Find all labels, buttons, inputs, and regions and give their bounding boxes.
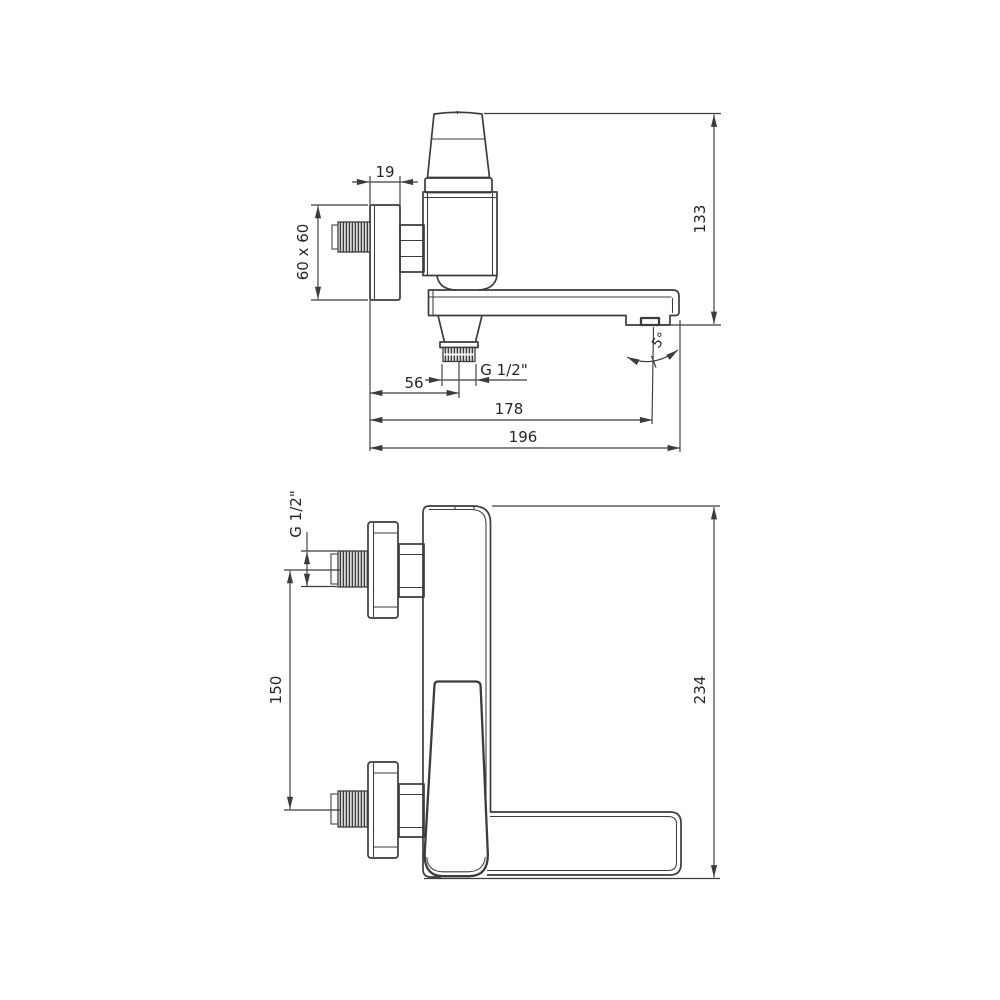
pipe-tip [332,225,338,249]
neck-right [476,316,483,343]
hex-nut-lower [399,784,424,837]
handle-top-notch [457,111,458,114]
faucet-technical-drawing: 19 60 x 60 133 G 1/2" 56 [0,0,1000,1000]
front-view-fixture [331,506,681,877]
handle-front [425,682,488,877]
dim-label-outlet-thread: G 1/2" [480,361,527,379]
side-view-fixture [332,111,679,362]
handle-knob [428,112,490,177]
dim-label-outlet-offset: 56 [404,374,423,392]
inlet-flange-upper [368,522,398,618]
dim-label-total-height: 234 [691,676,709,705]
handle-front-inner [427,857,486,872]
wall-thread [338,222,370,252]
body-dome-left [437,276,456,290]
pipe-tip [331,554,338,584]
dim-label-inlet-spacing: 150 [267,676,285,705]
front-view-dimensions: G 1/2" 150 234 [267,490,720,878]
inlet-thread-lower [338,791,368,827]
dim-label-plate-size: 60 x 60 [294,224,312,281]
hex-nut [400,225,424,272]
body-plate-top-right [429,506,491,812]
hex-nut-upper [399,544,424,597]
outlet-collar [440,342,478,348]
neck-left [438,316,445,343]
dim-label-total-depth: 196 [509,428,538,446]
spout-front-inner [487,817,677,871]
body-plate-inner [429,510,486,812]
aerator [641,318,659,325]
dim-label-inlet-thread: G 1/2" [287,490,305,537]
dim-label-reach: 178 [495,400,524,418]
side-view: 19 60 x 60 133 G 1/2" 56 [294,111,721,452]
dim-label-height: 133 [691,205,709,234]
spout-front [487,812,681,875]
dim-label-plate-depth: 19 [375,163,394,181]
pipe-tip [331,794,338,824]
technical-drawing-page: 19 60 x 60 133 G 1/2" 56 [0,0,1000,1000]
dim-label-spout-angle: 5° [649,330,671,352]
handle-collar [425,178,492,193]
front-view: G 1/2" 150 234 [267,490,720,878]
inlet-thread-upper [338,551,368,587]
side-view-dimensions: 19 60 x 60 133 G 1/2" 56 [294,114,721,453]
valve-body [423,192,497,276]
inlet-flange-lower [368,762,398,858]
body-dome-right [478,276,497,290]
